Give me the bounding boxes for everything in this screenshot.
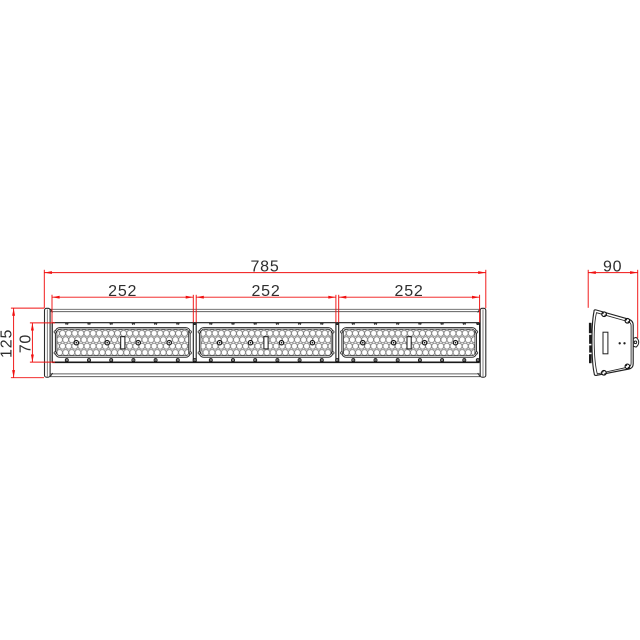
- svg-text:252: 252: [108, 283, 137, 300]
- svg-text:785: 785: [250, 258, 279, 275]
- svg-text:252: 252: [395, 283, 424, 300]
- svg-text:252: 252: [251, 283, 280, 300]
- svg-text:90: 90: [603, 258, 622, 275]
- svg-text:125: 125: [0, 329, 15, 358]
- svg-text:70: 70: [18, 334, 35, 353]
